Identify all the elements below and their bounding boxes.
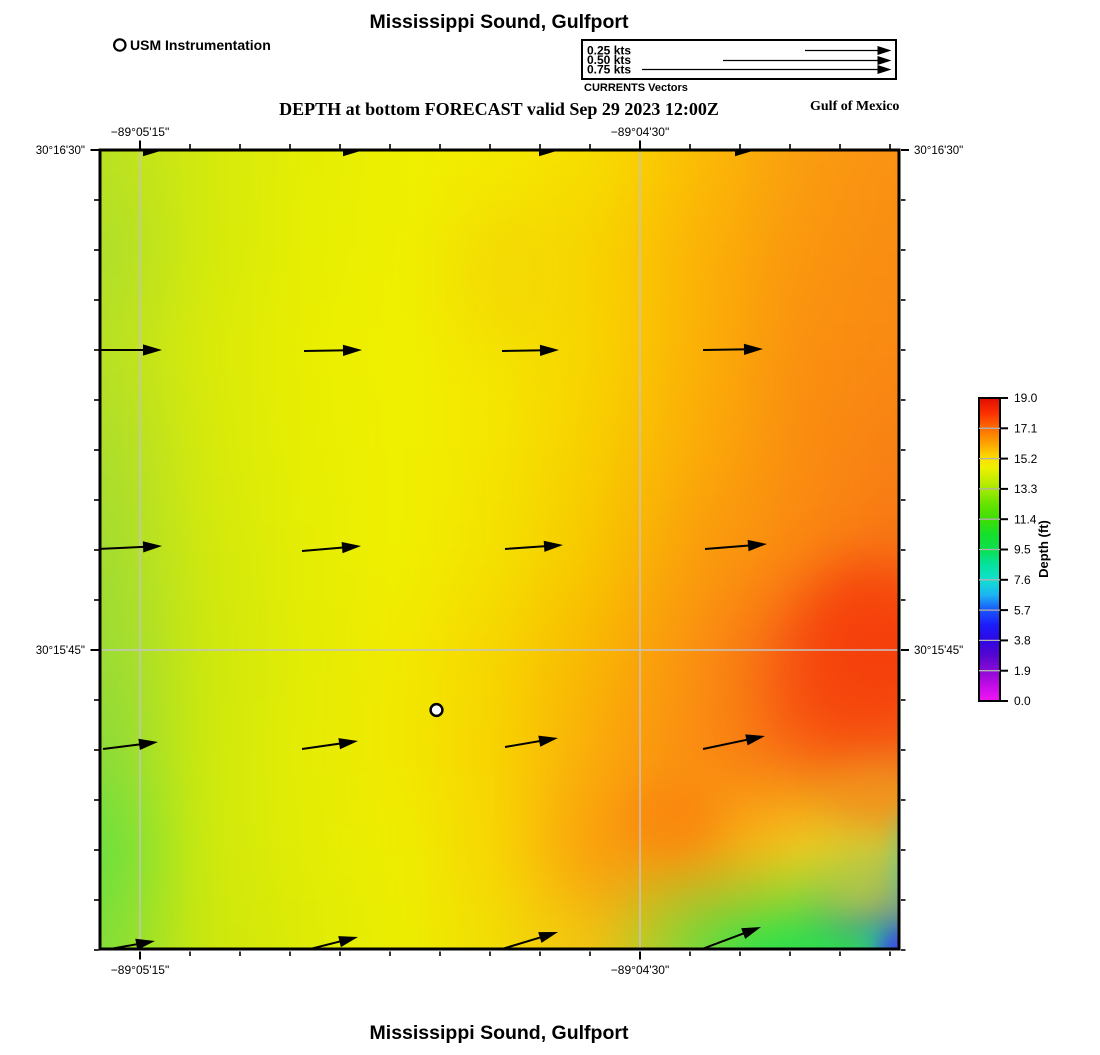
svg-text:−89°04'30": −89°04'30" [611, 125, 669, 139]
svg-text:11.4: 11.4 [1014, 512, 1037, 526]
svg-text:5.7: 5.7 [1014, 603, 1031, 617]
svg-text:DEPTH at bottom FORECAST valid: DEPTH at bottom FORECAST valid Sep 29 20… [279, 99, 719, 119]
svg-text:CURRENTS Vectors: CURRENTS Vectors [584, 82, 688, 94]
svg-text:30°15'45": 30°15'45" [36, 645, 85, 657]
svg-text:17.1: 17.1 [1014, 422, 1038, 436]
svg-text:15.2: 15.2 [1014, 452, 1038, 466]
svg-text:Depth (ft): Depth (ft) [1036, 520, 1051, 578]
svg-text:Mississippi Sound, Gulfport: Mississippi Sound, Gulfport [370, 11, 629, 33]
svg-text:0.0: 0.0 [1014, 694, 1031, 708]
svg-text:0.75 kts: 0.75 kts [587, 63, 631, 77]
svg-text:7.6: 7.6 [1014, 573, 1031, 587]
svg-text:30°16'30": 30°16'30" [914, 145, 963, 157]
svg-text:1.9: 1.9 [1014, 664, 1031, 678]
svg-text:30°15'45": 30°15'45" [914, 645, 963, 657]
svg-text:−89°04'30": −89°04'30" [611, 963, 669, 977]
svg-text:9.5: 9.5 [1014, 543, 1031, 557]
svg-text:19.0: 19.0 [1014, 391, 1038, 405]
svg-text:30°16'30": 30°16'30" [36, 145, 85, 157]
svg-text:3.8: 3.8 [1014, 634, 1031, 648]
svg-text:USM Instrumentation: USM Instrumentation [130, 37, 271, 53]
svg-text:−89°05'15": −89°05'15" [111, 963, 169, 977]
svg-text:−89°05'15": −89°05'15" [111, 125, 169, 139]
svg-text:13.3: 13.3 [1014, 482, 1038, 496]
svg-text:Mississippi Sound, Gulfport: Mississippi Sound, Gulfport [370, 1022, 629, 1044]
svg-text:Gulf of Mexico: Gulf of Mexico [810, 99, 899, 114]
